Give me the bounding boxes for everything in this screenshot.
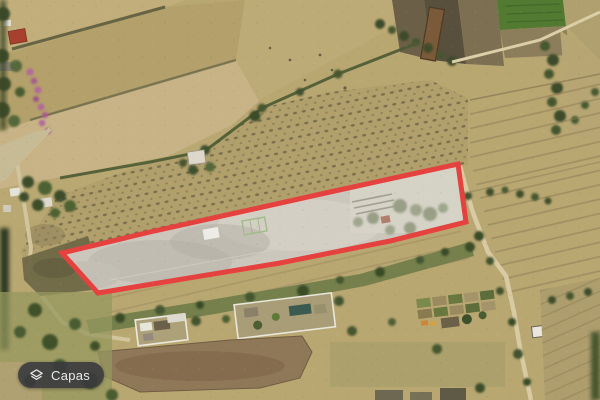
map-viewport[interactable]: Capas [0,0,600,400]
satellite-imagery [0,0,600,400]
image-grain-overlay [0,0,600,400]
layers-button-label: Capas [51,369,90,382]
layers-icon [29,368,44,383]
layers-button[interactable]: Capas [18,362,104,388]
